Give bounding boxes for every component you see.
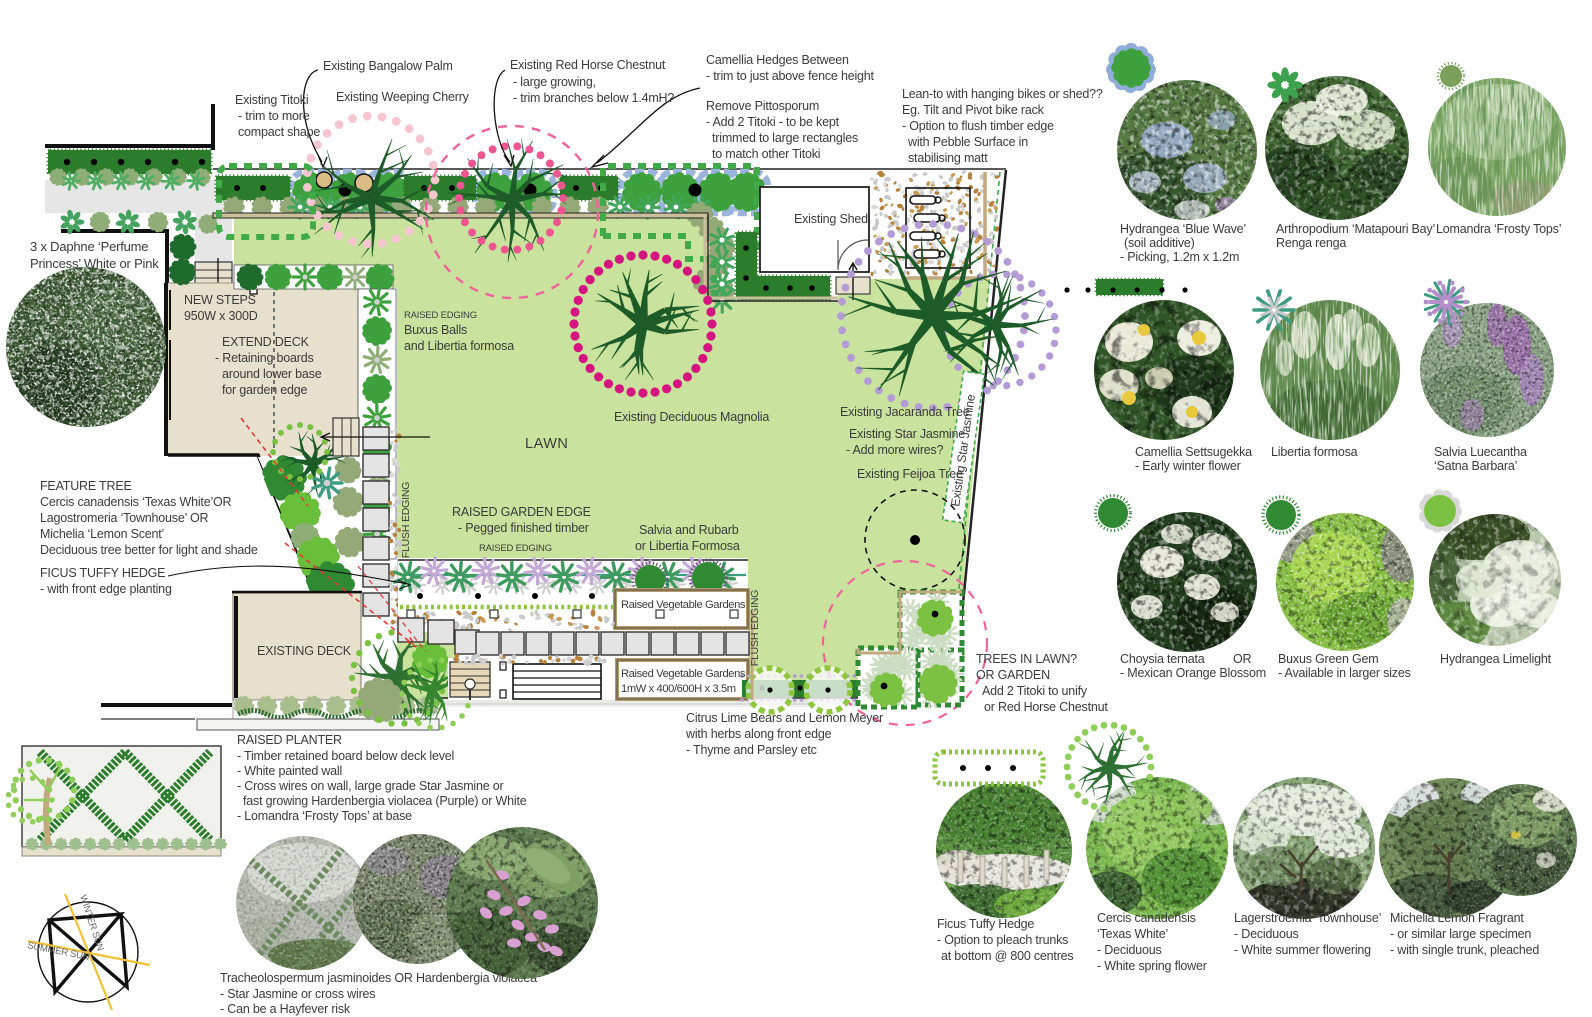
svg-text:- Available in larger sizes: - Available in larger sizes (1278, 666, 1411, 680)
svg-text:or Red Horse Chestnut: or Red Horse Chestnut (984, 700, 1108, 714)
svg-text:- Mexican Orange Blossom: - Mexican Orange Blossom (1120, 666, 1266, 680)
svg-text:Salvia and Rubarb: Salvia and Rubarb (639, 523, 739, 537)
svg-text:- Picking, 1.2m x 1.2m: - Picking, 1.2m x 1.2m (1120, 250, 1239, 264)
svg-text:compact shape: compact shape (238, 125, 320, 139)
svg-text:Existing Weeping Cherry: Existing Weeping Cherry (336, 90, 470, 104)
svg-text:fast growing Hardenbergia viol: fast growing Hardenbergia violacea (Purp… (243, 794, 527, 808)
svg-text:Ficus Tuffy Hedge: Ficus Tuffy Hedge (937, 917, 1034, 931)
svg-text:NEW STEPS: NEW STEPS (184, 293, 256, 307)
svg-text:- Option to pleach trunks: - Option to pleach trunks (937, 933, 1068, 947)
svg-text:to match other Titoki: to match other Titoki (712, 147, 820, 161)
svg-text:RAISED EDGING: RAISED EDGING (479, 543, 552, 554)
svg-text:and Libertia formosa: and Libertia formosa (404, 339, 514, 353)
svg-text:Michelia Lemon Fragrant: Michelia Lemon Fragrant (1390, 911, 1524, 925)
svg-text:Hydrangea Limelight: Hydrangea Limelight (1440, 652, 1552, 666)
svg-text:at bottom @ 800 centres: at bottom @ 800 centres (941, 949, 1073, 963)
svg-text:- Cross wires on wall, large g: - Cross wires on wall, large grade Star … (237, 779, 504, 793)
svg-text:- with single trunk, pleached: - with single trunk, pleached (1390, 943, 1539, 957)
svg-text:- White spring flower: - White spring flower (1097, 959, 1207, 973)
svg-text:FLUSH EDGING: FLUSH EDGING (400, 482, 412, 558)
svg-text:- Deciduous: - Deciduous (1234, 927, 1299, 941)
svg-text:- trim to more: - trim to more (238, 109, 310, 123)
svg-text:stabilising matt: stabilising matt (908, 151, 988, 165)
svg-text:- Option to flush timber edge: - Option to flush timber edge (902, 119, 1054, 133)
svg-text:- Timber retained board below: - Timber retained board below deck level (237, 749, 454, 763)
svg-text:- White painted wall: - White painted wall (237, 764, 342, 778)
svg-text:Eg. Tilt and Pivot bike rack: Eg. Tilt and Pivot bike rack (902, 103, 1045, 117)
svg-text:Lomandra ‘Frosty Tops’: Lomandra ‘Frosty Tops’ (1436, 222, 1561, 236)
svg-text:- Early winter flower: - Early winter flower (1135, 459, 1241, 473)
svg-text:Lean-to with hanging bikes or: Lean-to with hanging bikes or shed?? (902, 87, 1103, 101)
svg-text:with Pebble Surface in: with Pebble Surface in (907, 135, 1028, 149)
svg-text:FEATURE TREE: FEATURE TREE (40, 479, 132, 493)
svg-text:Lagostromeria ‘Townhouse’ OR: Lagostromeria ‘Townhouse’ OR (40, 511, 208, 525)
svg-text:Existing Feijoa Tree: Existing Feijoa Tree (857, 467, 963, 481)
svg-text:Existing Titoki: Existing Titoki (235, 93, 308, 107)
svg-text:- Can be a Hayfever risk: - Can be a Hayfever risk (220, 1002, 351, 1016)
svg-text:RAISED GARDEN EDGE: RAISED GARDEN EDGE (452, 505, 591, 519)
svg-text:- Thyme and Parsley etc: - Thyme and Parsley etc (686, 743, 817, 757)
svg-text:- Add 2 Titoki - to be kept: - Add 2 Titoki - to be kept (706, 115, 840, 129)
svg-text:Libertia formosa: Libertia formosa (1271, 445, 1358, 459)
svg-text:Existing Bangalow Palm: Existing Bangalow Palm (323, 59, 453, 73)
svg-text:FICUS TUFFY HEDGE: FICUS TUFFY HEDGE (40, 566, 165, 580)
svg-text:Existing Deciduous Magnolia: Existing Deciduous Magnolia (614, 410, 769, 424)
svg-text:Citrus Lime Bears and Lemon Me: Citrus Lime Bears and Lemon Meyer (686, 711, 883, 725)
svg-text:Buxus Balls: Buxus Balls (404, 323, 467, 337)
svg-text:- large growing,: - large growing, (513, 75, 596, 89)
svg-text:Camellia Hedges Between: Camellia Hedges Between (706, 53, 849, 67)
svg-text:EXISTING DECK: EXISTING DECK (257, 644, 352, 658)
svg-text:around lower base: around lower base (222, 367, 322, 381)
svg-text:Raised Vegetable Gardens: Raised Vegetable Gardens (621, 599, 746, 611)
svg-text:- Deciduous: - Deciduous (1097, 943, 1162, 957)
svg-text:- Retaining boards: - Retaining boards (215, 351, 314, 365)
svg-text:OR: OR (1233, 652, 1252, 666)
svg-text:Existing Shed: Existing Shed (794, 212, 868, 226)
svg-text:Deciduous tree better for ligh: Deciduous tree better for light and shad… (40, 543, 258, 557)
svg-text:- trim to just above fence hei: - trim to just above fence height (706, 69, 875, 83)
svg-text:trimmed to large rectangles: trimmed to large rectangles (712, 131, 858, 145)
svg-text:Buxus Green Gem: Buxus Green Gem (1278, 652, 1379, 666)
svg-text:Existing Red Horse Chestnut: Existing Red Horse Chestnut (510, 58, 666, 72)
svg-text:RAISED PLANTER: RAISED PLANTER (237, 733, 342, 747)
svg-text:Hydrangea ‘Blue Wave’: Hydrangea ‘Blue Wave’ (1120, 222, 1246, 236)
svg-text:EXTEND DECK: EXTEND DECK (222, 335, 310, 349)
svg-text:RAISED EDGING: RAISED EDGING (404, 310, 477, 321)
svg-text:Raised Vegetable Gardens: Raised Vegetable Gardens (621, 668, 746, 680)
svg-text:OR GARDEN: OR GARDEN (976, 668, 1050, 682)
svg-text:- Star Jasmine or cross wires: - Star Jasmine or cross wires (220, 987, 375, 1001)
svg-text:(soil additive): (soil additive) (1124, 236, 1195, 250)
svg-text:- or similar large specimen: - or similar large specimen (1390, 927, 1531, 941)
svg-text:for garden edge: for garden edge (222, 383, 308, 397)
svg-text:- Pegged finished timber: - Pegged finished timber (458, 521, 589, 535)
svg-text:Existing Jacaranda Tree: Existing Jacaranda Tree (840, 405, 970, 419)
svg-text:Existing Star Jasmine: Existing Star Jasmine (849, 427, 965, 441)
svg-text:- White summer flowering: - White summer flowering (1234, 943, 1371, 957)
svg-text:Camellia Settsugekka: Camellia Settsugekka (1135, 445, 1252, 459)
svg-text:Cercis canadensis ‘Texas White: Cercis canadensis ‘Texas White’OR (40, 495, 232, 509)
svg-text:FLUSH EDGING: FLUSH EDGING (749, 590, 761, 666)
svg-text:Lagerstroemia ‘Townhouse’: Lagerstroemia ‘Townhouse’ (1234, 911, 1381, 925)
svg-text:or Libertia Formosa: or Libertia Formosa (635, 539, 740, 553)
svg-text:Arthropodium ‘Matapouri Bay’: Arthropodium ‘Matapouri Bay’ (1276, 222, 1435, 236)
svg-text:Add 2 Titoki to unify: Add 2 Titoki to unify (982, 684, 1088, 698)
svg-text:Renga renga: Renga renga (1276, 236, 1346, 250)
svg-text:950W x 300D: 950W x 300D (184, 309, 258, 323)
svg-text:‘Texas White’: ‘Texas White’ (1097, 927, 1168, 941)
svg-text:- Lomandra ‘Frosty Tops’ at ba: - Lomandra ‘Frosty Tops’ at base (237, 809, 412, 823)
svg-text:- trim branches below 1.4mH?: - trim branches below 1.4mH? (513, 91, 674, 105)
svg-text:- with front edge planting: - with front edge planting (40, 582, 172, 596)
svg-text:3 x Daphne ‘Perfume: 3 x Daphne ‘Perfume (30, 239, 148, 254)
svg-text:Tracheolospermum jasminoides: Tracheolospermum jasminoides OR Hardenbe… (220, 971, 537, 985)
svg-text:with herbs along front edge: with herbs along front edge (685, 727, 832, 741)
svg-text:Remove Pittosporum: Remove Pittosporum (706, 99, 819, 113)
svg-text:Michelia ‘Lemon Scent’: Michelia ‘Lemon Scent’ (40, 527, 164, 541)
svg-text:Salvia Luecantha: Salvia Luecantha (1434, 445, 1527, 459)
svg-text:- Add more wires?: - Add more wires? (846, 443, 944, 457)
svg-text:1mW x 400/600H x 3.5m: 1mW x 400/600H x 3.5m (621, 683, 736, 695)
svg-text:Cercis canadensis: Cercis canadensis (1097, 911, 1196, 925)
svg-text:LAWN: LAWN (525, 436, 568, 452)
svg-text:TREES IN LAWN?: TREES IN LAWN? (976, 652, 1077, 666)
svg-text:Choysia ternata: Choysia ternata (1120, 652, 1205, 666)
svg-text:‘Satna Barbara’: ‘Satna Barbara’ (1434, 459, 1517, 473)
